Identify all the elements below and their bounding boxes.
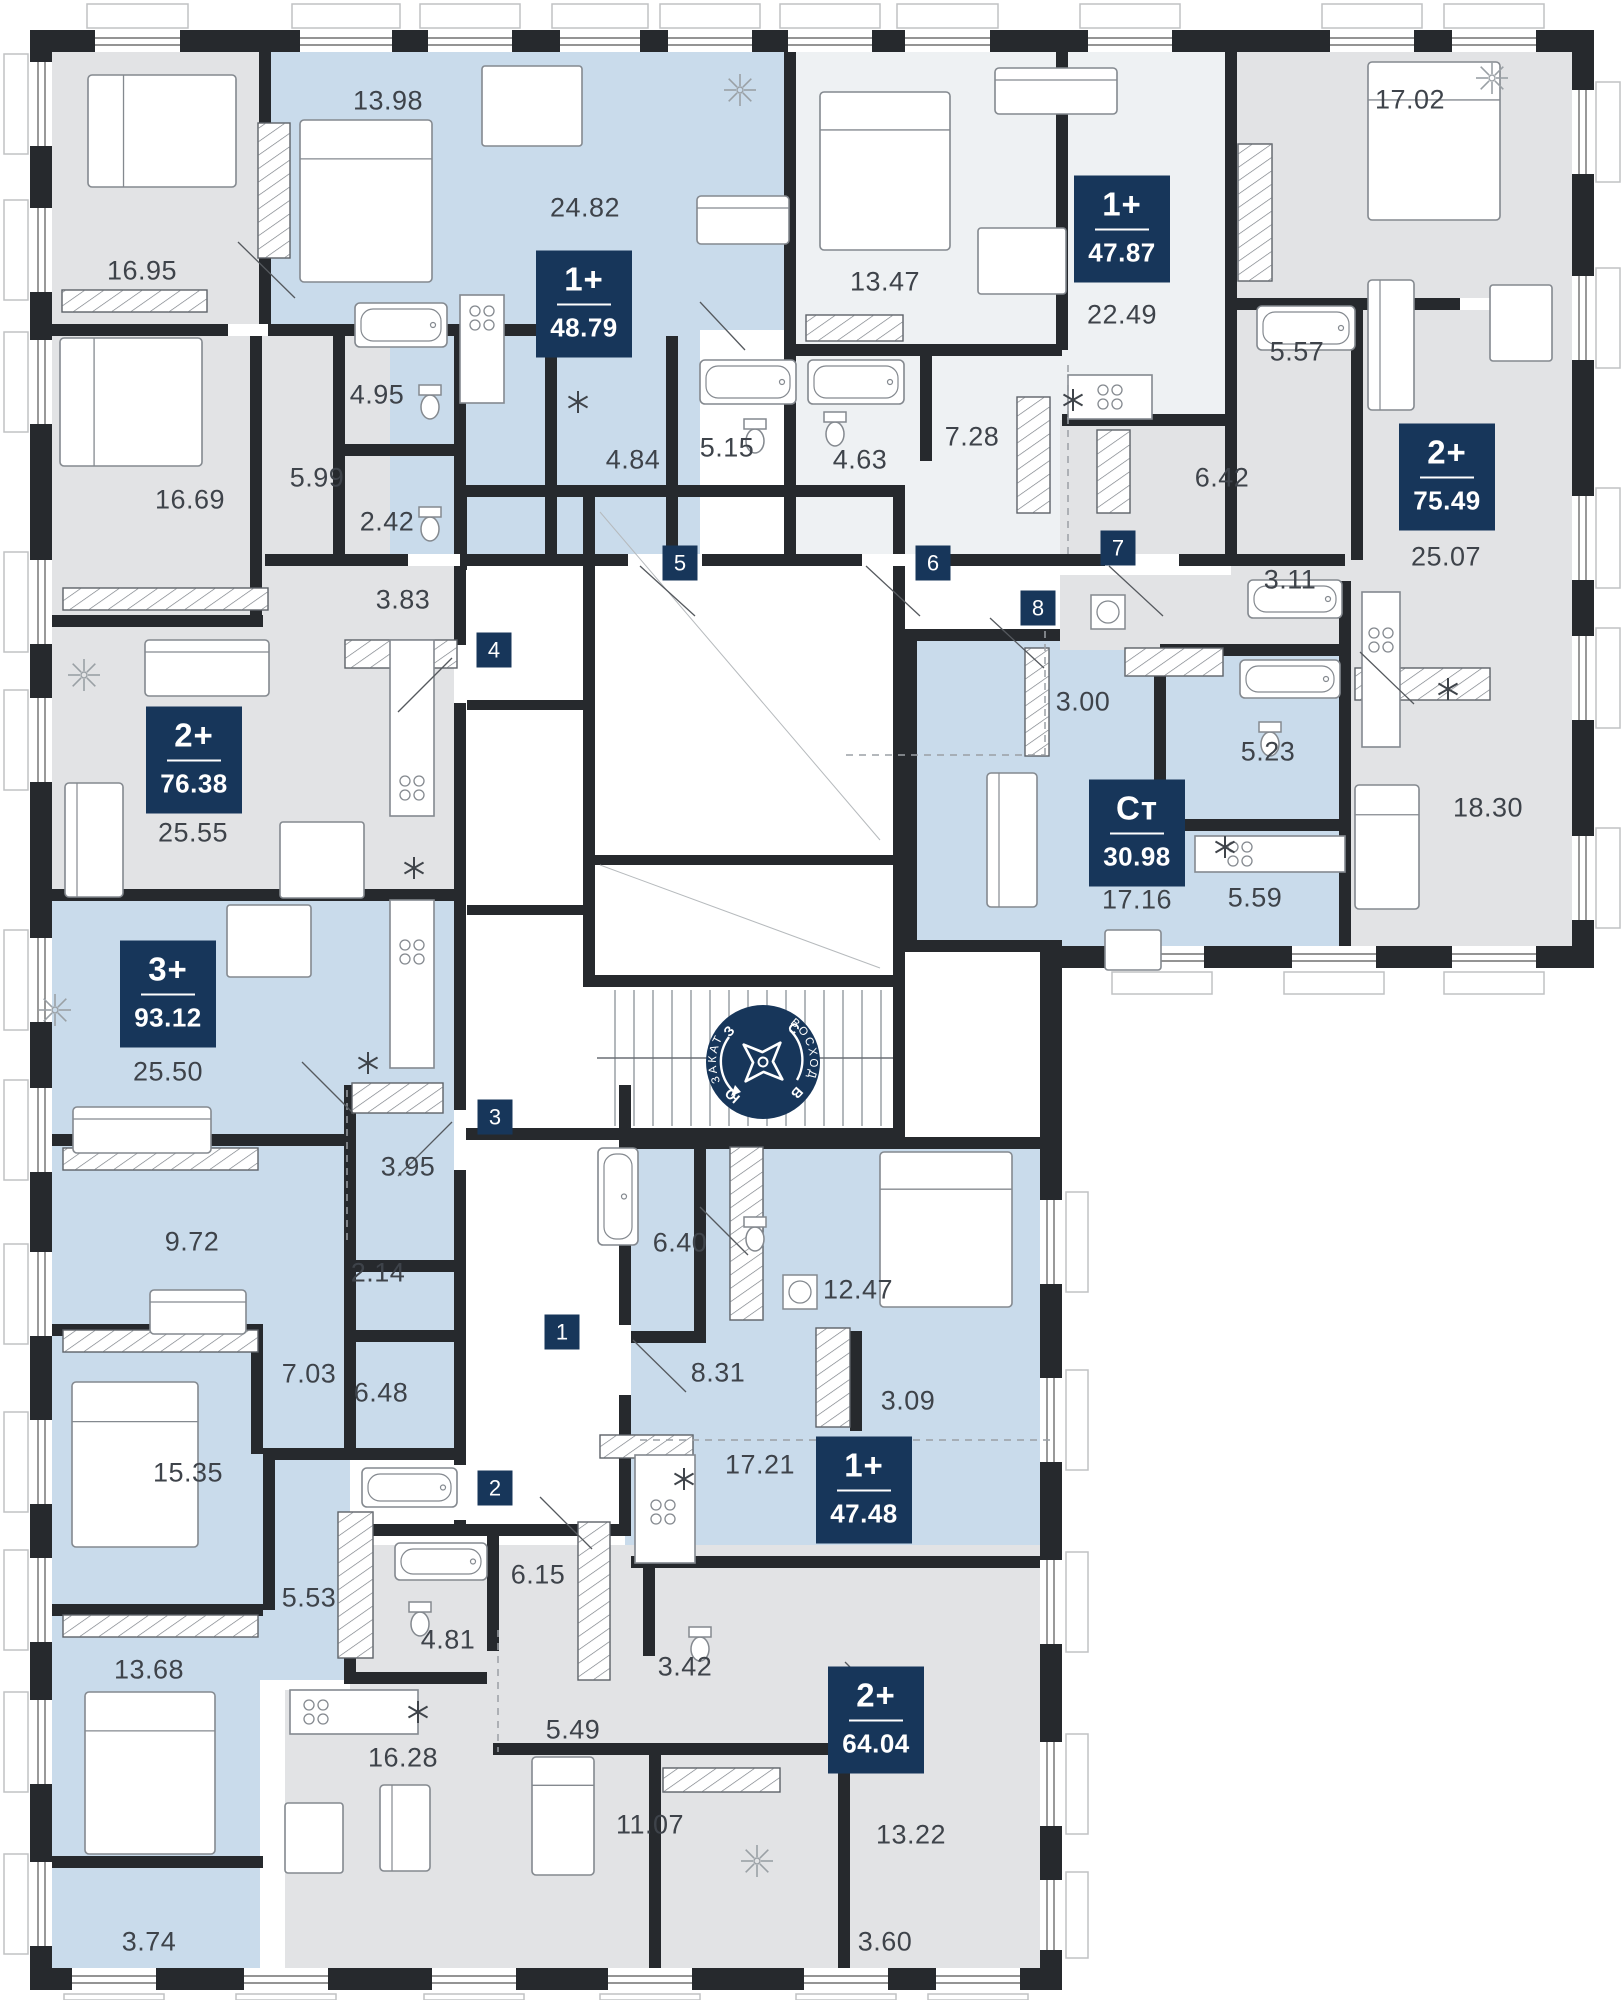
room-area-label: 6.15	[511, 1560, 566, 1591]
room-area-label: 3.42	[658, 1652, 713, 1683]
apartment-area: 76.38	[147, 769, 241, 800]
room-area-label: 3.09	[881, 1386, 936, 1417]
room-area-label: 25.55	[158, 818, 228, 849]
badge-divider	[1095, 229, 1149, 231]
badge-divider	[1420, 477, 1474, 479]
badge-divider	[141, 994, 195, 996]
room-area-label: 5.15	[700, 433, 755, 464]
apartment-badge[interactable]: 2+76.38	[147, 708, 241, 813]
entrance-marker: 8	[1021, 591, 1056, 626]
compass-icon: С В Ю З ЗАКАТ ВОСХОД	[693, 992, 833, 1132]
room-area-label: 3.83	[376, 585, 431, 616]
apartment-area: 48.79	[537, 313, 631, 344]
room-area-label: 17.16	[1102, 885, 1172, 916]
room-area-label: 8.31	[691, 1358, 746, 1389]
entrance-marker: 5	[663, 546, 698, 581]
apartment-badge[interactable]: 2+75.49	[1400, 425, 1494, 530]
room-area-label: 5.57	[1270, 337, 1325, 368]
apartment-badge[interactable]: 1+48.79	[537, 252, 631, 357]
apartment-type: 1+	[817, 1449, 911, 1482]
apartment-type: 3+	[121, 953, 215, 986]
apartment-badge[interactable]: 1+47.48	[817, 1438, 911, 1543]
room-area-label: 4.81	[421, 1625, 476, 1656]
room-area-label: 6.42	[1195, 463, 1250, 494]
room-area-label: 13.68	[114, 1655, 184, 1686]
apartment-badge[interactable]: 3+93.12	[121, 942, 215, 1047]
room-area-label: 7.28	[945, 422, 1000, 453]
room-area-label: 4.63	[833, 445, 888, 476]
apartment-type: 2+	[1400, 436, 1494, 469]
apartment-area: 47.48	[817, 1499, 911, 1530]
room-area-label: 5.99	[290, 463, 345, 494]
entrance-marker: 7	[1101, 531, 1136, 566]
badge-divider	[849, 1720, 903, 1722]
apartment-badge[interactable]: 2+64.04	[829, 1668, 923, 1773]
apartment-area: 64.04	[829, 1729, 923, 1760]
room-area-label: 3.00	[1056, 687, 1111, 718]
room-area-label: 25.07	[1411, 542, 1481, 573]
room-area-label: 5.23	[1241, 737, 1296, 768]
apartment-area: 93.12	[121, 1003, 215, 1034]
entrance-marker: 3	[478, 1100, 513, 1135]
apartment-badge[interactable]: 1+47.87	[1075, 177, 1169, 282]
room-area-label: 5.49	[546, 1715, 601, 1746]
room-area-label: 16.69	[155, 485, 225, 516]
apartment-type: 2+	[147, 719, 241, 752]
room-area-label: 3.11	[1264, 565, 1317, 596]
apartment-type: 1+	[537, 263, 631, 296]
room-area-label: 13.98	[353, 86, 423, 117]
apartment-type: 2+	[829, 1679, 923, 1712]
room-area-label: 16.95	[107, 256, 177, 287]
entrance-marker: 1	[545, 1315, 580, 1350]
room-area-label: 3.95	[381, 1152, 436, 1183]
apartment-type: Ст	[1090, 792, 1184, 825]
apartment-area: 30.98	[1090, 842, 1184, 873]
room-area-label: 24.82	[550, 193, 620, 224]
room-area-label: 16.28	[368, 1743, 438, 1774]
entrance-marker: 2	[478, 1471, 513, 1506]
room-area-label: 6.40	[653, 1228, 708, 1259]
room-area-label: 18.30	[1453, 793, 1523, 824]
room-area-label: 15.35	[153, 1458, 223, 1489]
room-area-label: 13.22	[876, 1820, 946, 1851]
room-area-label: 2.42	[360, 507, 415, 538]
room-area-label: 25.50	[133, 1057, 203, 1088]
floor-plan: 16.9513.9824.824.955.9916.692.423.834.84…	[0, 0, 1624, 2000]
room-area-label: 2.14	[351, 1258, 406, 1289]
room-area-label: 3.74	[122, 1927, 177, 1958]
room-area-label: 12.47	[823, 1275, 893, 1306]
apartment-area: 47.87	[1075, 238, 1169, 269]
badge-divider	[557, 304, 611, 306]
badge-divider	[167, 760, 221, 762]
room-area-label: 6.48	[354, 1378, 409, 1409]
room-area-label: 17.02	[1375, 85, 1445, 116]
room-area-label: 4.84	[606, 445, 661, 476]
room-area-label: 11.07	[616, 1810, 684, 1841]
room-area-label: 4.95	[350, 380, 405, 411]
room-area-label: 9.72	[165, 1227, 220, 1258]
apartment-area: 75.49	[1400, 486, 1494, 517]
room-area-label: 13.47	[850, 267, 920, 298]
room-area-label: 3.60	[858, 1927, 913, 1958]
room-area-label: 7.03	[282, 1359, 337, 1390]
entrance-marker: 4	[477, 633, 512, 668]
room-area-label: 5.59	[1228, 883, 1283, 914]
badge-divider	[837, 1490, 891, 1492]
room-area-label: 22.49	[1087, 300, 1157, 331]
room-area-label: 17.21	[725, 1450, 795, 1481]
room-area-label: 5.53	[282, 1583, 337, 1614]
entrance-marker: 6	[916, 546, 951, 581]
apartment-badge[interactable]: Ст30.98	[1090, 781, 1184, 886]
apartment-type: 1+	[1075, 188, 1169, 221]
badge-divider	[1110, 833, 1164, 835]
